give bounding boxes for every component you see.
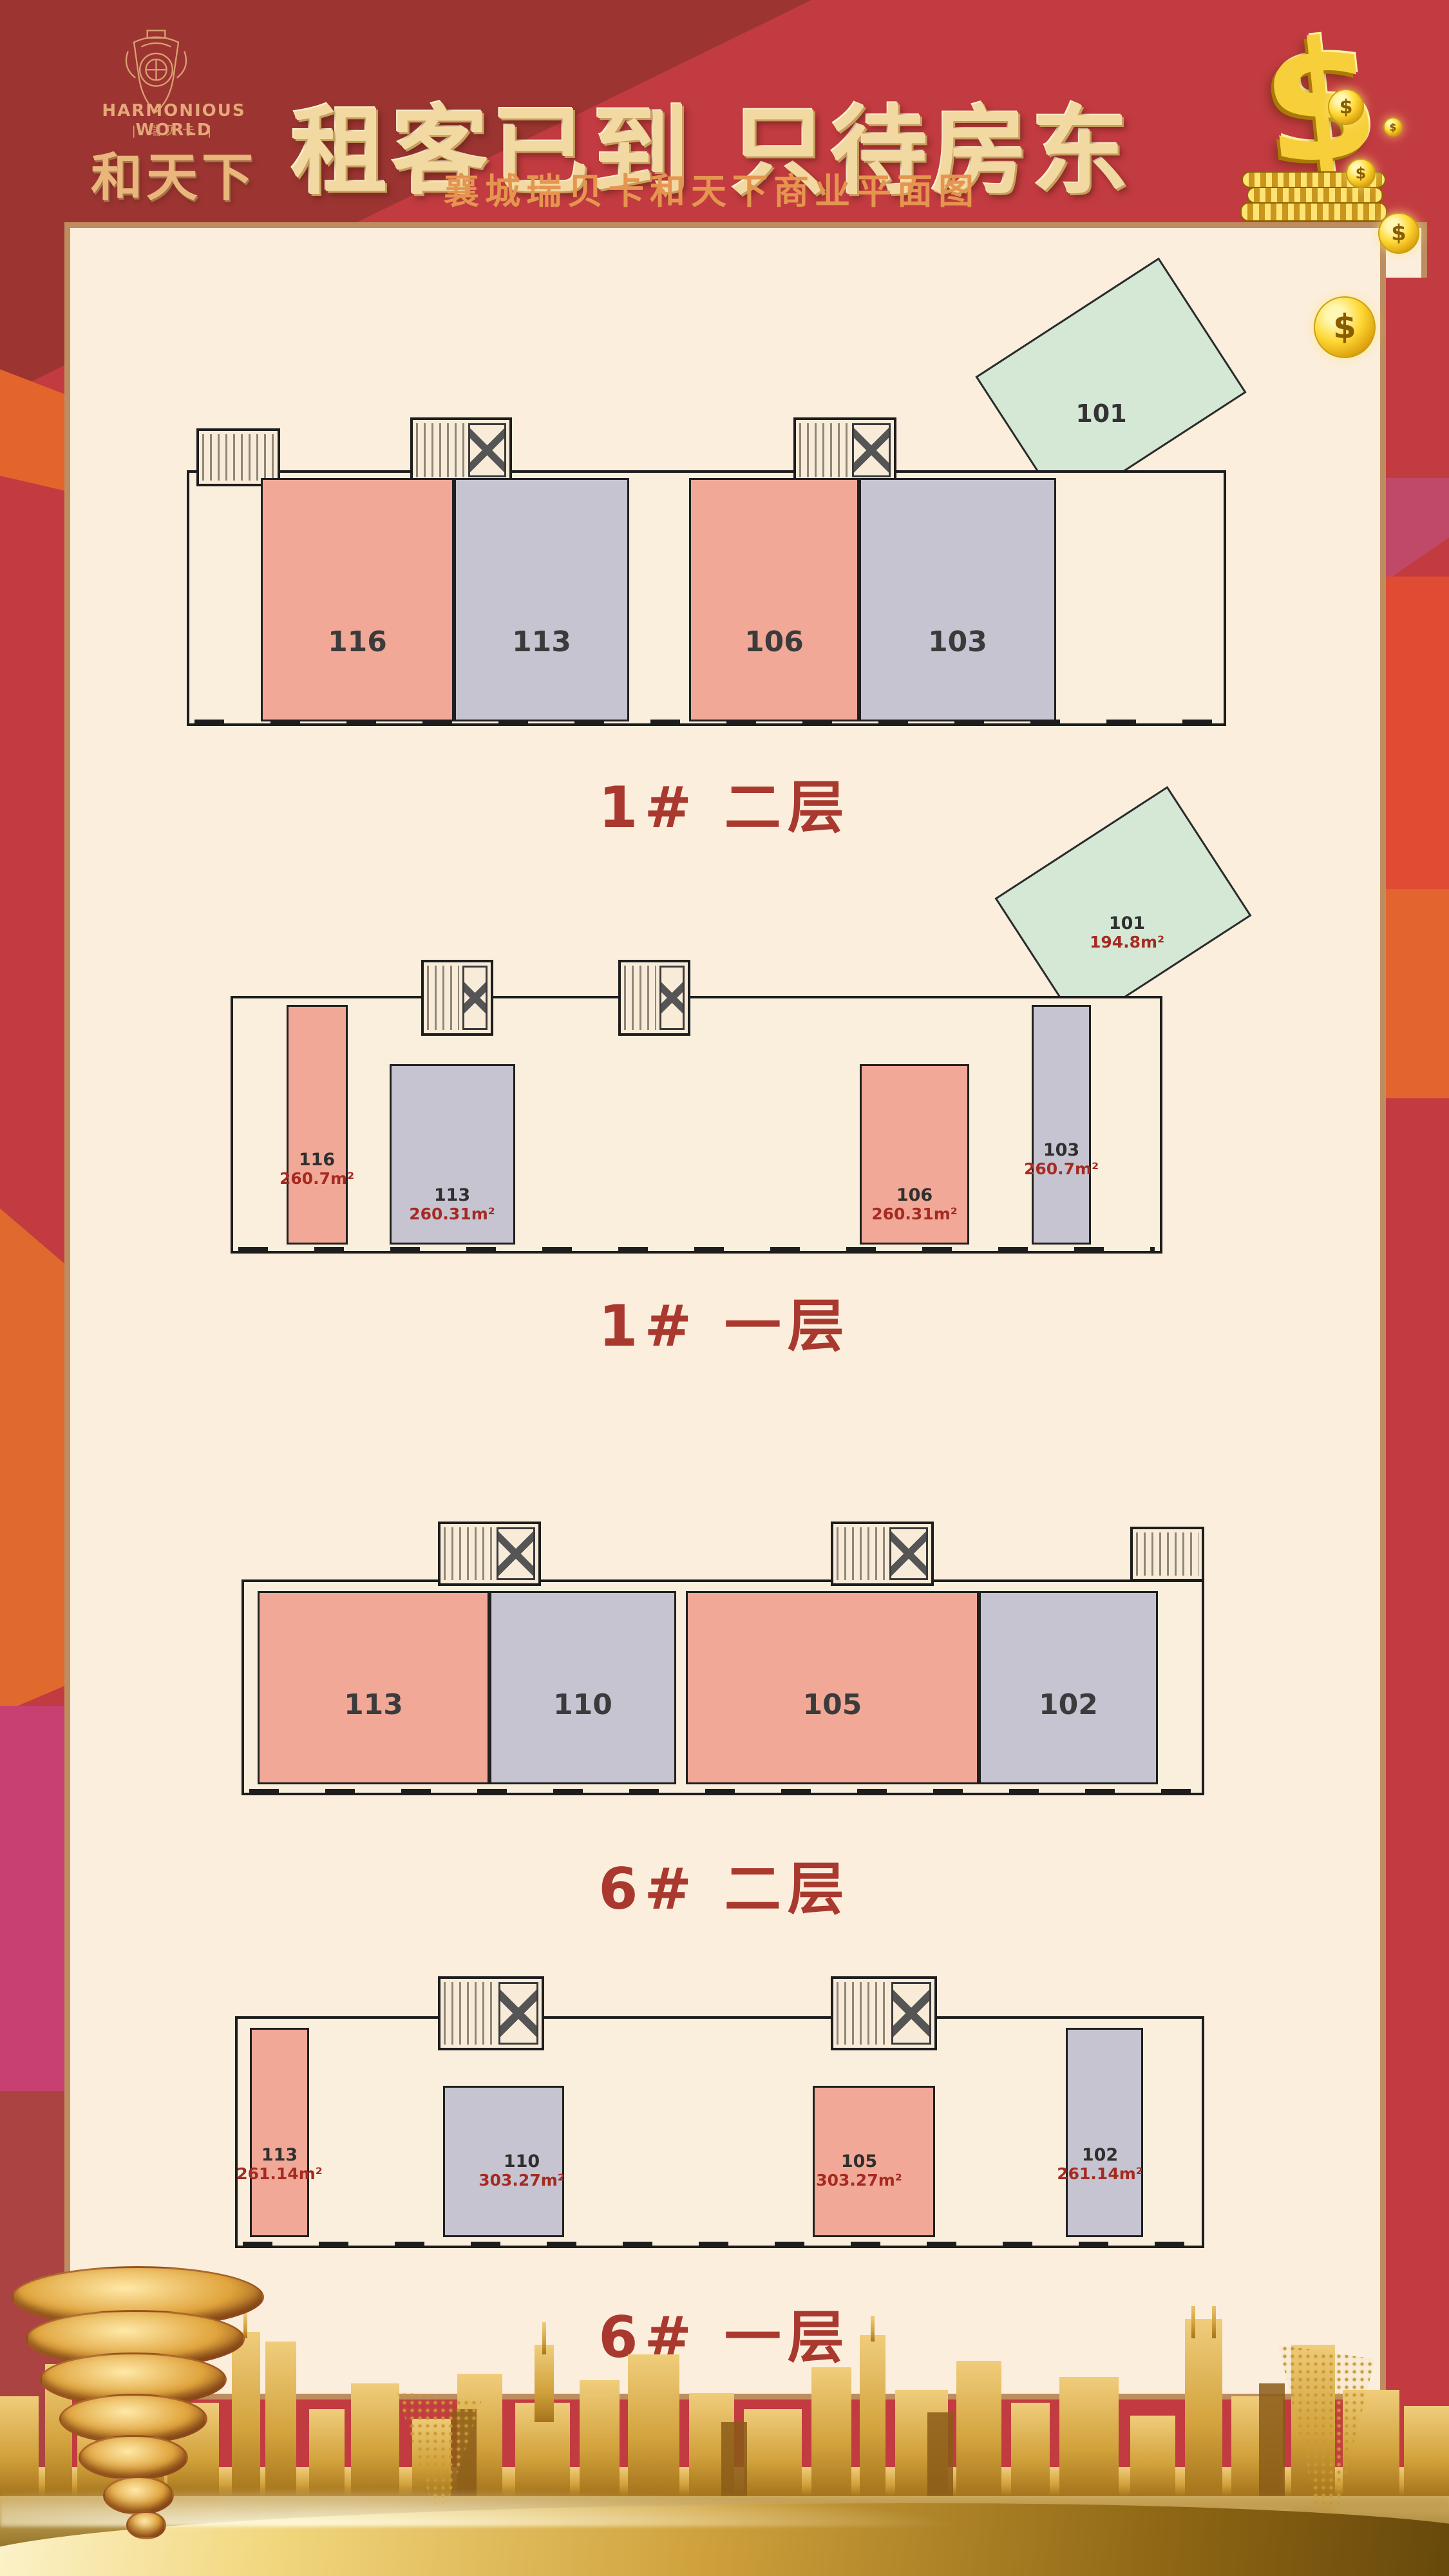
coin-dollar-glyph: $ xyxy=(1340,96,1353,119)
plan-label-1-1f: 1# 一层 xyxy=(0,1281,1449,1362)
elevator-icon xyxy=(659,966,685,1030)
unit-113: 113 xyxy=(258,1591,489,1784)
unit-area: 260.7m² xyxy=(246,1170,388,1188)
coin-dollar-glyph: $ xyxy=(1356,164,1367,182)
plan-label-6-2f: 6# 二层 xyxy=(0,1844,1449,1925)
elevator-icon xyxy=(462,966,488,1030)
stair-hatch-icon xyxy=(624,966,656,1030)
unit-number: 101 xyxy=(1056,913,1198,933)
stair-hatch-icon xyxy=(837,1527,886,1580)
unit-label-106: 106 260.31m² xyxy=(844,1185,985,1224)
stair-elevator-core xyxy=(438,1522,541,1586)
poster-canvas: HARMONIOUS WORLD | 瑞贝卡 | 和天下 租客已到 只待房东 襄… xyxy=(0,0,1449,2576)
unit-label-116: 116 260.7m² xyxy=(246,1150,388,1188)
background-right-orangered-band xyxy=(1378,577,1449,893)
unit-103: 103 xyxy=(859,478,1056,721)
coin-dollar-glyph: $ xyxy=(1391,220,1406,246)
background-right-mauve-band xyxy=(1378,478,1449,586)
unit-area: 303.27m² xyxy=(788,2171,930,2190)
unit-number: 103 xyxy=(861,625,1054,658)
stair-elevator-core xyxy=(438,1976,544,2050)
unit-area: 261.14m² xyxy=(1029,2165,1171,2184)
floor-plan-1-2f: 101 116 113 106 103 xyxy=(187,271,1233,731)
unit-113 xyxy=(250,2028,309,2237)
elevator-icon xyxy=(497,1527,535,1580)
stair-hatch-icon xyxy=(444,1982,495,2045)
floor-plan-6-1f: 113 261.14m² 110 303.27m² 105 303.27m² 1… xyxy=(219,1939,1217,2248)
unit-number: 116 xyxy=(246,1150,388,1170)
coin-stack-icon xyxy=(1240,202,1387,222)
coin-stack-icon xyxy=(1247,187,1383,204)
unit-number: 113 xyxy=(456,625,627,658)
unit-number: 102 xyxy=(981,1688,1156,1721)
unit-area: 260.31m² xyxy=(844,1205,985,1224)
background-right-orange-band xyxy=(1378,889,1449,1098)
unit-label-105: 105 303.27m² xyxy=(788,2151,930,2190)
unit-number: 105 xyxy=(688,1688,977,1721)
stair-hatch-icon xyxy=(444,1527,493,1580)
unit-number: 110 xyxy=(491,1688,674,1721)
stair-elevator-core xyxy=(410,417,512,483)
unit-label-113: 113 260.31m² xyxy=(381,1185,523,1224)
unit-102 xyxy=(1066,2028,1143,2237)
gold-spiral-tornado-icon xyxy=(103,2476,174,2515)
stair-elevator-core xyxy=(421,960,493,1036)
gold-coin-icon: $ xyxy=(1314,296,1376,358)
stair-hatch-icon xyxy=(202,434,274,481)
stair-elevator-core xyxy=(831,1976,937,2050)
elevator-icon xyxy=(889,1527,928,1580)
stair-elevator-core xyxy=(831,1522,934,1586)
gold-spiral-tornado-icon xyxy=(126,2511,166,2539)
coin-dollar-glyph: $ xyxy=(1333,308,1356,347)
unit-label-101: 101 xyxy=(1043,399,1159,428)
elevator-icon xyxy=(891,1982,931,2045)
elevator-icon xyxy=(852,423,891,477)
gold-coin-icon: $ xyxy=(1383,117,1403,137)
unit-label-102: 102 261.14m² xyxy=(1029,2145,1171,2184)
unit-106: 106 xyxy=(689,478,859,721)
gold-coin-icon: $ xyxy=(1378,213,1419,254)
building-outline xyxy=(235,2016,1204,2248)
unit-area: 303.27m² xyxy=(451,2171,592,2190)
elevator-icon xyxy=(498,1982,538,2045)
unit-number: 103 xyxy=(990,1140,1132,1160)
unit-label-113: 113 261.14m² xyxy=(209,2145,350,2184)
unit-number: 113 xyxy=(381,1185,523,1205)
elevator-icon xyxy=(468,423,506,477)
dollar-sign-icon: $ xyxy=(1231,6,1409,200)
stair-hatch-icon xyxy=(427,966,459,1030)
unit-area: 260.31m² xyxy=(381,1205,523,1224)
unit-116 xyxy=(287,1005,348,1245)
unit-113: 113 xyxy=(454,478,629,721)
stair-elevator-core xyxy=(793,417,896,483)
unit-101-shape xyxy=(994,786,1251,1028)
unit-label-101: 101 194.8m² xyxy=(1056,913,1198,952)
unit-number: 102 xyxy=(1029,2145,1171,2165)
unit-102: 102 xyxy=(979,1591,1158,1784)
unit-116: 116 xyxy=(261,478,454,721)
stair-hatch-icon xyxy=(416,423,465,477)
unit-number: 106 xyxy=(844,1185,985,1205)
unit-number: 105 xyxy=(788,2151,930,2171)
stairwell-block xyxy=(1130,1527,1204,1581)
unit-number: 113 xyxy=(260,1688,488,1721)
stair-hatch-icon xyxy=(799,423,849,477)
unit-105: 105 xyxy=(686,1591,979,1784)
unit-110: 110 xyxy=(489,1591,676,1784)
unit-area: 260.7m² xyxy=(990,1160,1132,1179)
building-outline xyxy=(231,996,1162,1254)
unit-number: 116 xyxy=(263,625,452,658)
unit-label-110: 110 303.27m² xyxy=(451,2151,592,2190)
coin-dollar-glyph: $ xyxy=(1389,121,1396,133)
page-subtitle: 襄城瑞贝卡和天下商业平面图 xyxy=(270,162,1153,214)
unit-area: 261.14m² xyxy=(209,2165,350,2184)
stair-hatch-icon xyxy=(1136,1532,1198,1576)
stair-hatch-icon xyxy=(837,1982,888,2045)
brand-name-cn: 和天下 xyxy=(61,136,287,211)
unit-number: 106 xyxy=(691,625,857,658)
unit-number: 110 xyxy=(451,2151,592,2171)
floor-plan-1-1f: 101 194.8m² 116 260.7m² 113 260.31m² 106… xyxy=(225,799,1265,1263)
gold-coin-icon: $ xyxy=(1346,158,1376,188)
unit-area: 194.8m² xyxy=(1056,933,1198,952)
unit-number: 113 xyxy=(209,2145,350,2165)
gold-spiral-tornado-icon xyxy=(79,2435,188,2480)
unit-103 xyxy=(1032,1005,1091,1245)
floor-plan-6-2f: 113 110 105 102 xyxy=(232,1501,1211,1797)
unit-label-103: 103 260.7m² xyxy=(990,1140,1132,1179)
gold-coin-icon: $ xyxy=(1328,89,1364,125)
stair-elevator-core xyxy=(618,960,690,1036)
